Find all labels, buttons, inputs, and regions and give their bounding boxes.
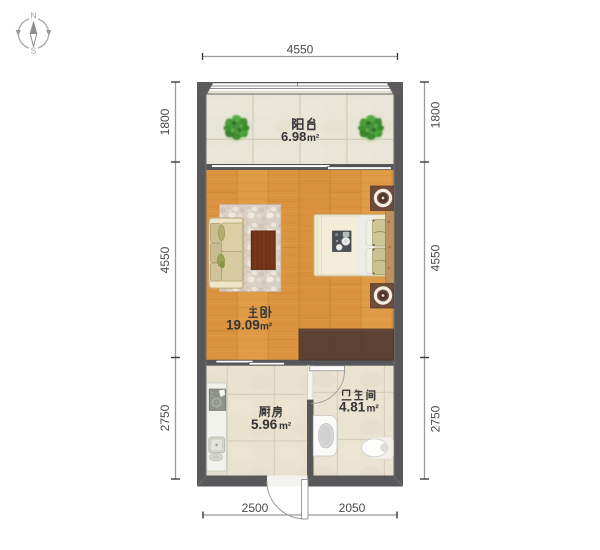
svg-text:4.81: 4.81 <box>339 400 366 415</box>
svg-text:m²: m² <box>367 404 380 415</box>
svg-text:4550: 4550 <box>158 246 172 273</box>
svg-text:2750: 2750 <box>158 404 172 431</box>
svg-text:m²: m² <box>279 421 292 432</box>
svg-text:6.98: 6.98 <box>281 129 306 144</box>
svg-text:2500: 2500 <box>242 501 269 515</box>
svg-text:4550: 4550 <box>429 244 443 271</box>
svg-text:2750: 2750 <box>429 405 443 432</box>
svg-text:1800: 1800 <box>158 108 172 135</box>
svg-text:m²: m² <box>260 322 273 333</box>
svg-text:1800: 1800 <box>429 101 443 128</box>
svg-text:S: S <box>31 46 37 56</box>
svg-text:19.09: 19.09 <box>226 318 260 333</box>
svg-text:N: N <box>30 11 36 21</box>
svg-text:2050: 2050 <box>339 501 366 515</box>
svg-text:4550: 4550 <box>287 43 314 57</box>
svg-text:5.96: 5.96 <box>251 417 278 432</box>
svg-text:m²: m² <box>307 133 320 144</box>
